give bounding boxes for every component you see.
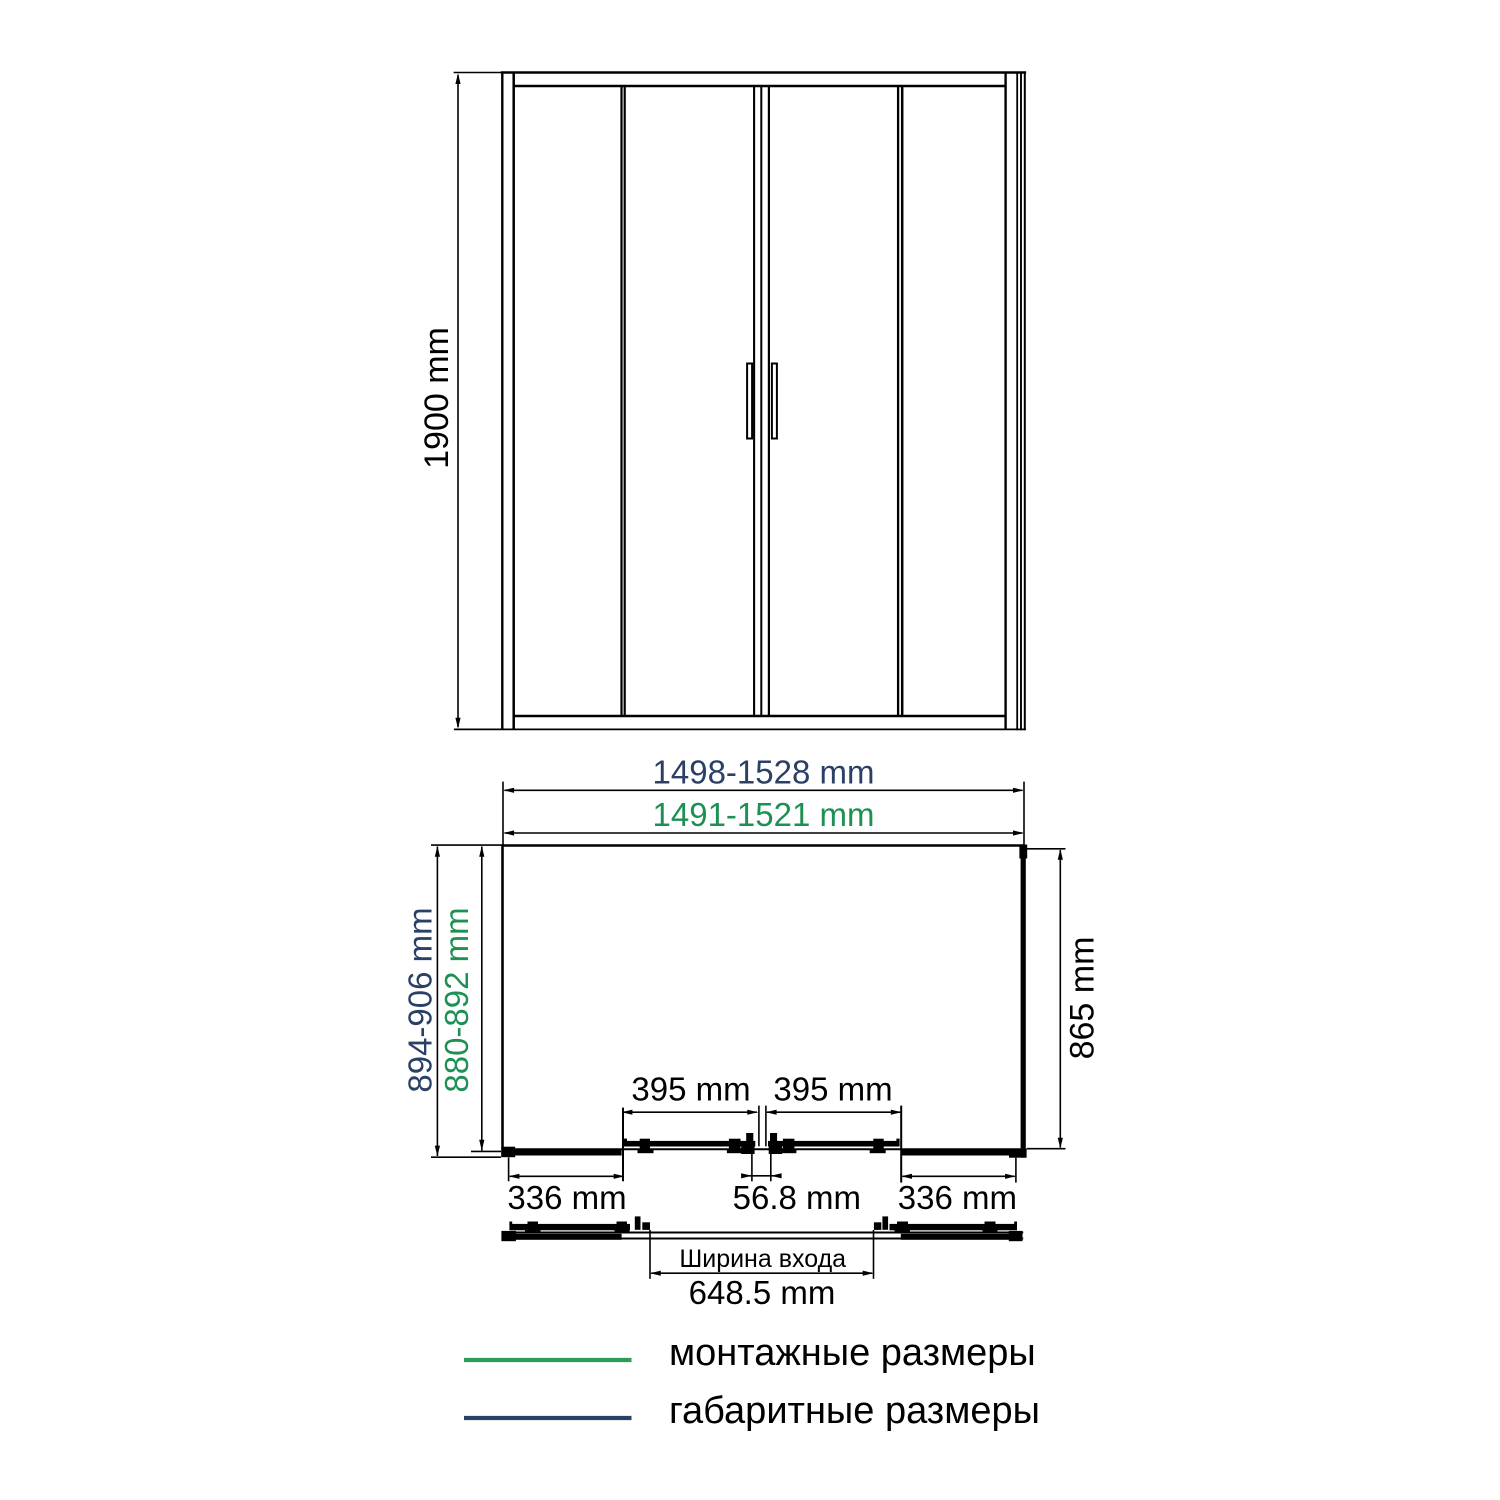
svg-text:648.5 mm: 648.5 mm bbox=[689, 1274, 836, 1311]
svg-text:56.8 mm: 56.8 mm bbox=[733, 1179, 861, 1216]
svg-text:395 mm: 395 mm bbox=[631, 1071, 750, 1108]
svg-text:Ширина входа: Ширина входа bbox=[679, 1245, 846, 1273]
svg-text:865 mm: 865 mm bbox=[1064, 937, 1102, 1060]
svg-text:монтажные размеры: монтажные размеры bbox=[669, 1332, 1036, 1374]
svg-text:1900 mm: 1900 mm bbox=[418, 327, 456, 469]
svg-text:336 mm: 336 mm bbox=[898, 1179, 1017, 1216]
svg-text:395 mm: 395 mm bbox=[773, 1071, 892, 1108]
svg-text:894-906 mm: 894-906 mm bbox=[402, 907, 439, 1092]
svg-text:880-892 mm: 880-892 mm bbox=[438, 907, 475, 1092]
svg-text:габаритные размеры: габаритные размеры bbox=[669, 1390, 1040, 1432]
svg-text:1498-1528 mm: 1498-1528 mm bbox=[653, 754, 875, 791]
svg-text:1491-1521 mm: 1491-1521 mm bbox=[653, 796, 875, 833]
svg-text:336 mm: 336 mm bbox=[507, 1179, 626, 1216]
